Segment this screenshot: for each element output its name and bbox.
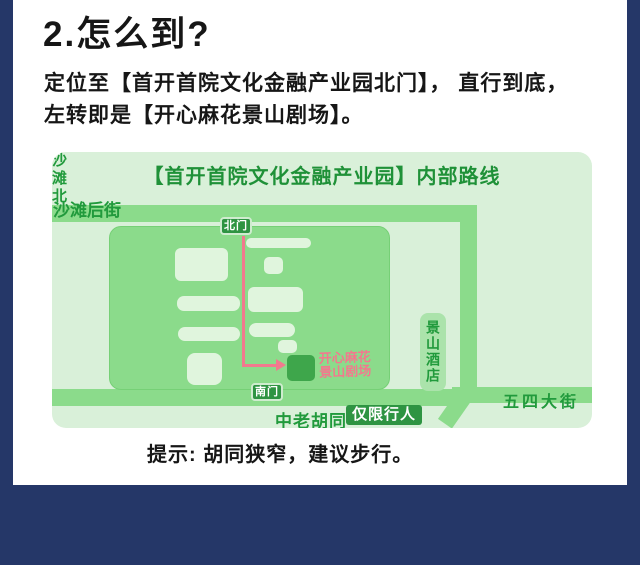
building-block: [175, 248, 228, 281]
street-label-hutong: 中老胡同: [275, 407, 347, 428]
building-block: [178, 327, 240, 341]
pedestrian-only-badge: 仅限行人: [346, 405, 422, 425]
section-title: 2.怎么到?: [43, 6, 211, 57]
route-line-vertical: [242, 236, 245, 367]
map-panel: 【首开首院文化金融产业园】内部路线 沙滩后街 沙滩北街 五四大街 中老胡同 仅限…: [52, 152, 592, 428]
map-title: 【首开首院文化金融产业园】内部路线: [52, 160, 592, 189]
street-label-shatan-back: 沙滩后街: [53, 196, 121, 221]
theater-building: [287, 355, 315, 381]
building-block: [249, 323, 295, 337]
building-block: [246, 238, 311, 248]
building-block: [177, 296, 240, 311]
theater-label: 开心麻花 景山剧场: [319, 350, 372, 380]
route-arrowhead-icon: [276, 359, 286, 371]
street-label-wusi-avenue: 五四大街: [503, 388, 579, 412]
tip-text: 提示: 胡同狭窄，建议步行。: [147, 438, 413, 467]
route-line-horizontal: [242, 364, 277, 367]
directions-line-2: 左转即是【开心麻花景山剧场】。: [44, 104, 364, 127]
content-card: 2.怎么到? 定位至【首开首院文化金融产业园北门】， 直行到底， 左转即是【开心…: [13, 0, 627, 485]
building-block: [264, 257, 283, 274]
north-gate-badge: 北门: [220, 217, 252, 235]
building-block: [187, 353, 222, 385]
south-gate-badge: 南门: [251, 383, 283, 401]
page-background: 2.怎么到? 定位至【首开首院文化金融产业园北门】， 直行到底， 左转即是【开心…: [0, 0, 640, 565]
hotel-box: 景山酒店: [420, 313, 446, 391]
road-shatan-north-street: [460, 205, 477, 403]
directions-text: 定位至【首开首院文化金融产业园北门】， 直行到底， 左转即是【开心麻花景山剧场】…: [44, 68, 568, 132]
directions-line-1: 定位至【首开首院文化金融产业园北门】， 直行到底，: [44, 72, 568, 95]
theater-label-line-2: 景山剧场: [319, 364, 371, 380]
building-block: [248, 287, 303, 312]
building-block: [278, 340, 297, 353]
